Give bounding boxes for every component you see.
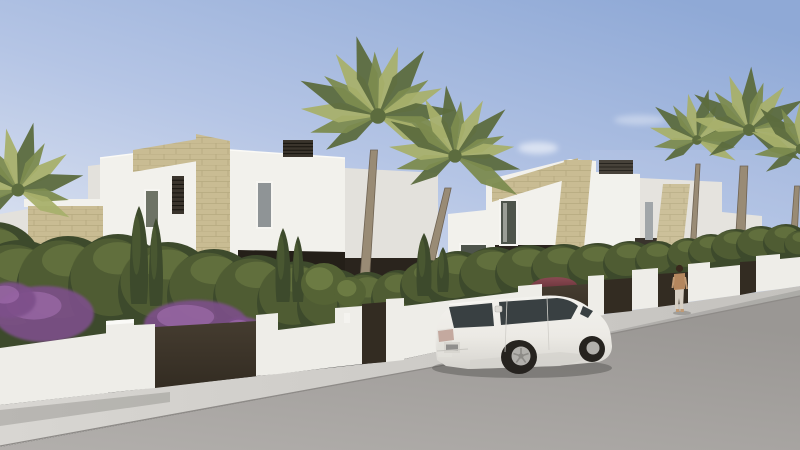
window [500, 200, 517, 245]
gate-pillar [632, 268, 658, 310]
person-head [676, 265, 683, 272]
fence-wall [710, 265, 740, 299]
window [257, 182, 272, 228]
cypress-highlight [151, 227, 158, 280]
curtain-hint [503, 203, 507, 242]
fence-step-pillar [106, 319, 134, 393]
pedestrian-gate [362, 302, 386, 364]
palm-crown-center [370, 108, 385, 123]
cloud [518, 142, 558, 154]
palm-crown-center [743, 124, 755, 136]
palm-crown-center [448, 149, 461, 162]
shrub-highlight [337, 280, 356, 297]
person-foot [681, 309, 684, 312]
gate-pillar [688, 262, 710, 302]
gate-pillar [256, 313, 278, 376]
gate-panel [604, 278, 632, 314]
car-rear-window [449, 303, 494, 328]
cypress-highlight [277, 235, 284, 279]
scene-canvas [0, 0, 800, 450]
rendered-photo [0, 0, 800, 450]
louver-box [283, 140, 313, 157]
louver-box [172, 176, 184, 214]
gate-panel [740, 261, 756, 295]
fence-wall [780, 257, 800, 289]
gate-pillar [386, 298, 404, 362]
white-suv [432, 295, 612, 378]
wheel-hub [518, 353, 523, 358]
person-torso [674, 273, 685, 290]
side-mirror [495, 306, 502, 312]
cloud [614, 115, 666, 125]
cypress-highlight [132, 216, 141, 275]
shrub-highlight [306, 267, 334, 290]
hedge-blob-top [647, 244, 670, 257]
cypress-highlight [294, 243, 300, 283]
fence-wall [278, 323, 335, 374]
gate-pillar [756, 254, 780, 292]
cypress-highlight [418, 239, 425, 277]
intercom-box [344, 313, 350, 323]
front-wheel-alloy [587, 342, 600, 355]
fence-wall [134, 324, 155, 390]
person-foot [676, 309, 679, 312]
tail-light [438, 329, 454, 342]
cypress-highlight [439, 252, 445, 279]
palm-crown-center [12, 184, 25, 197]
